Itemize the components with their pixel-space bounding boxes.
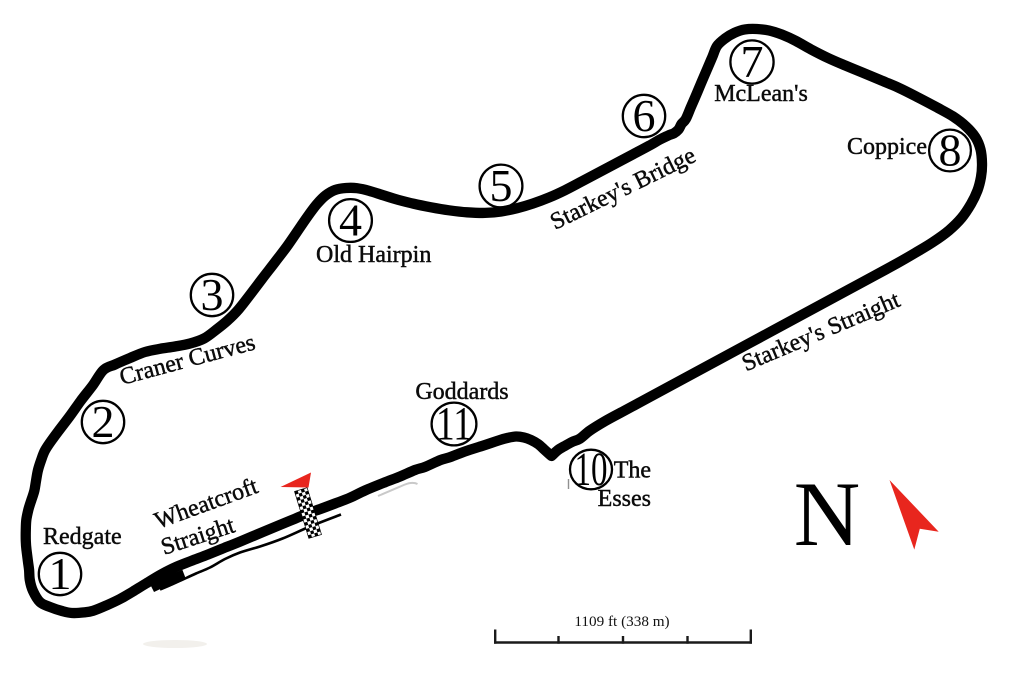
svg-text:11: 11 — [436, 398, 472, 451]
svg-text:5: 5 — [490, 160, 513, 211]
svg-text:Old Hairpin: Old Hairpin — [316, 242, 431, 268]
svg-text:1109 ft (338 m): 1109 ft (338 m) — [574, 613, 669, 630]
svg-text:3: 3 — [201, 269, 224, 320]
svg-text:7: 7 — [741, 36, 764, 87]
svg-text:1: 1 — [49, 548, 72, 599]
svg-text:10: 10 — [575, 443, 608, 496]
svg-text:Coppice: Coppice — [847, 134, 927, 160]
svg-text:2: 2 — [92, 396, 115, 447]
svg-text:8: 8 — [939, 125, 962, 176]
svg-text:Redgate: Redgate — [43, 524, 122, 550]
svg-text:The: The — [614, 458, 651, 484]
svg-text:N: N — [794, 463, 860, 565]
svg-text:6: 6 — [633, 90, 656, 141]
svg-text:4: 4 — [339, 195, 362, 246]
